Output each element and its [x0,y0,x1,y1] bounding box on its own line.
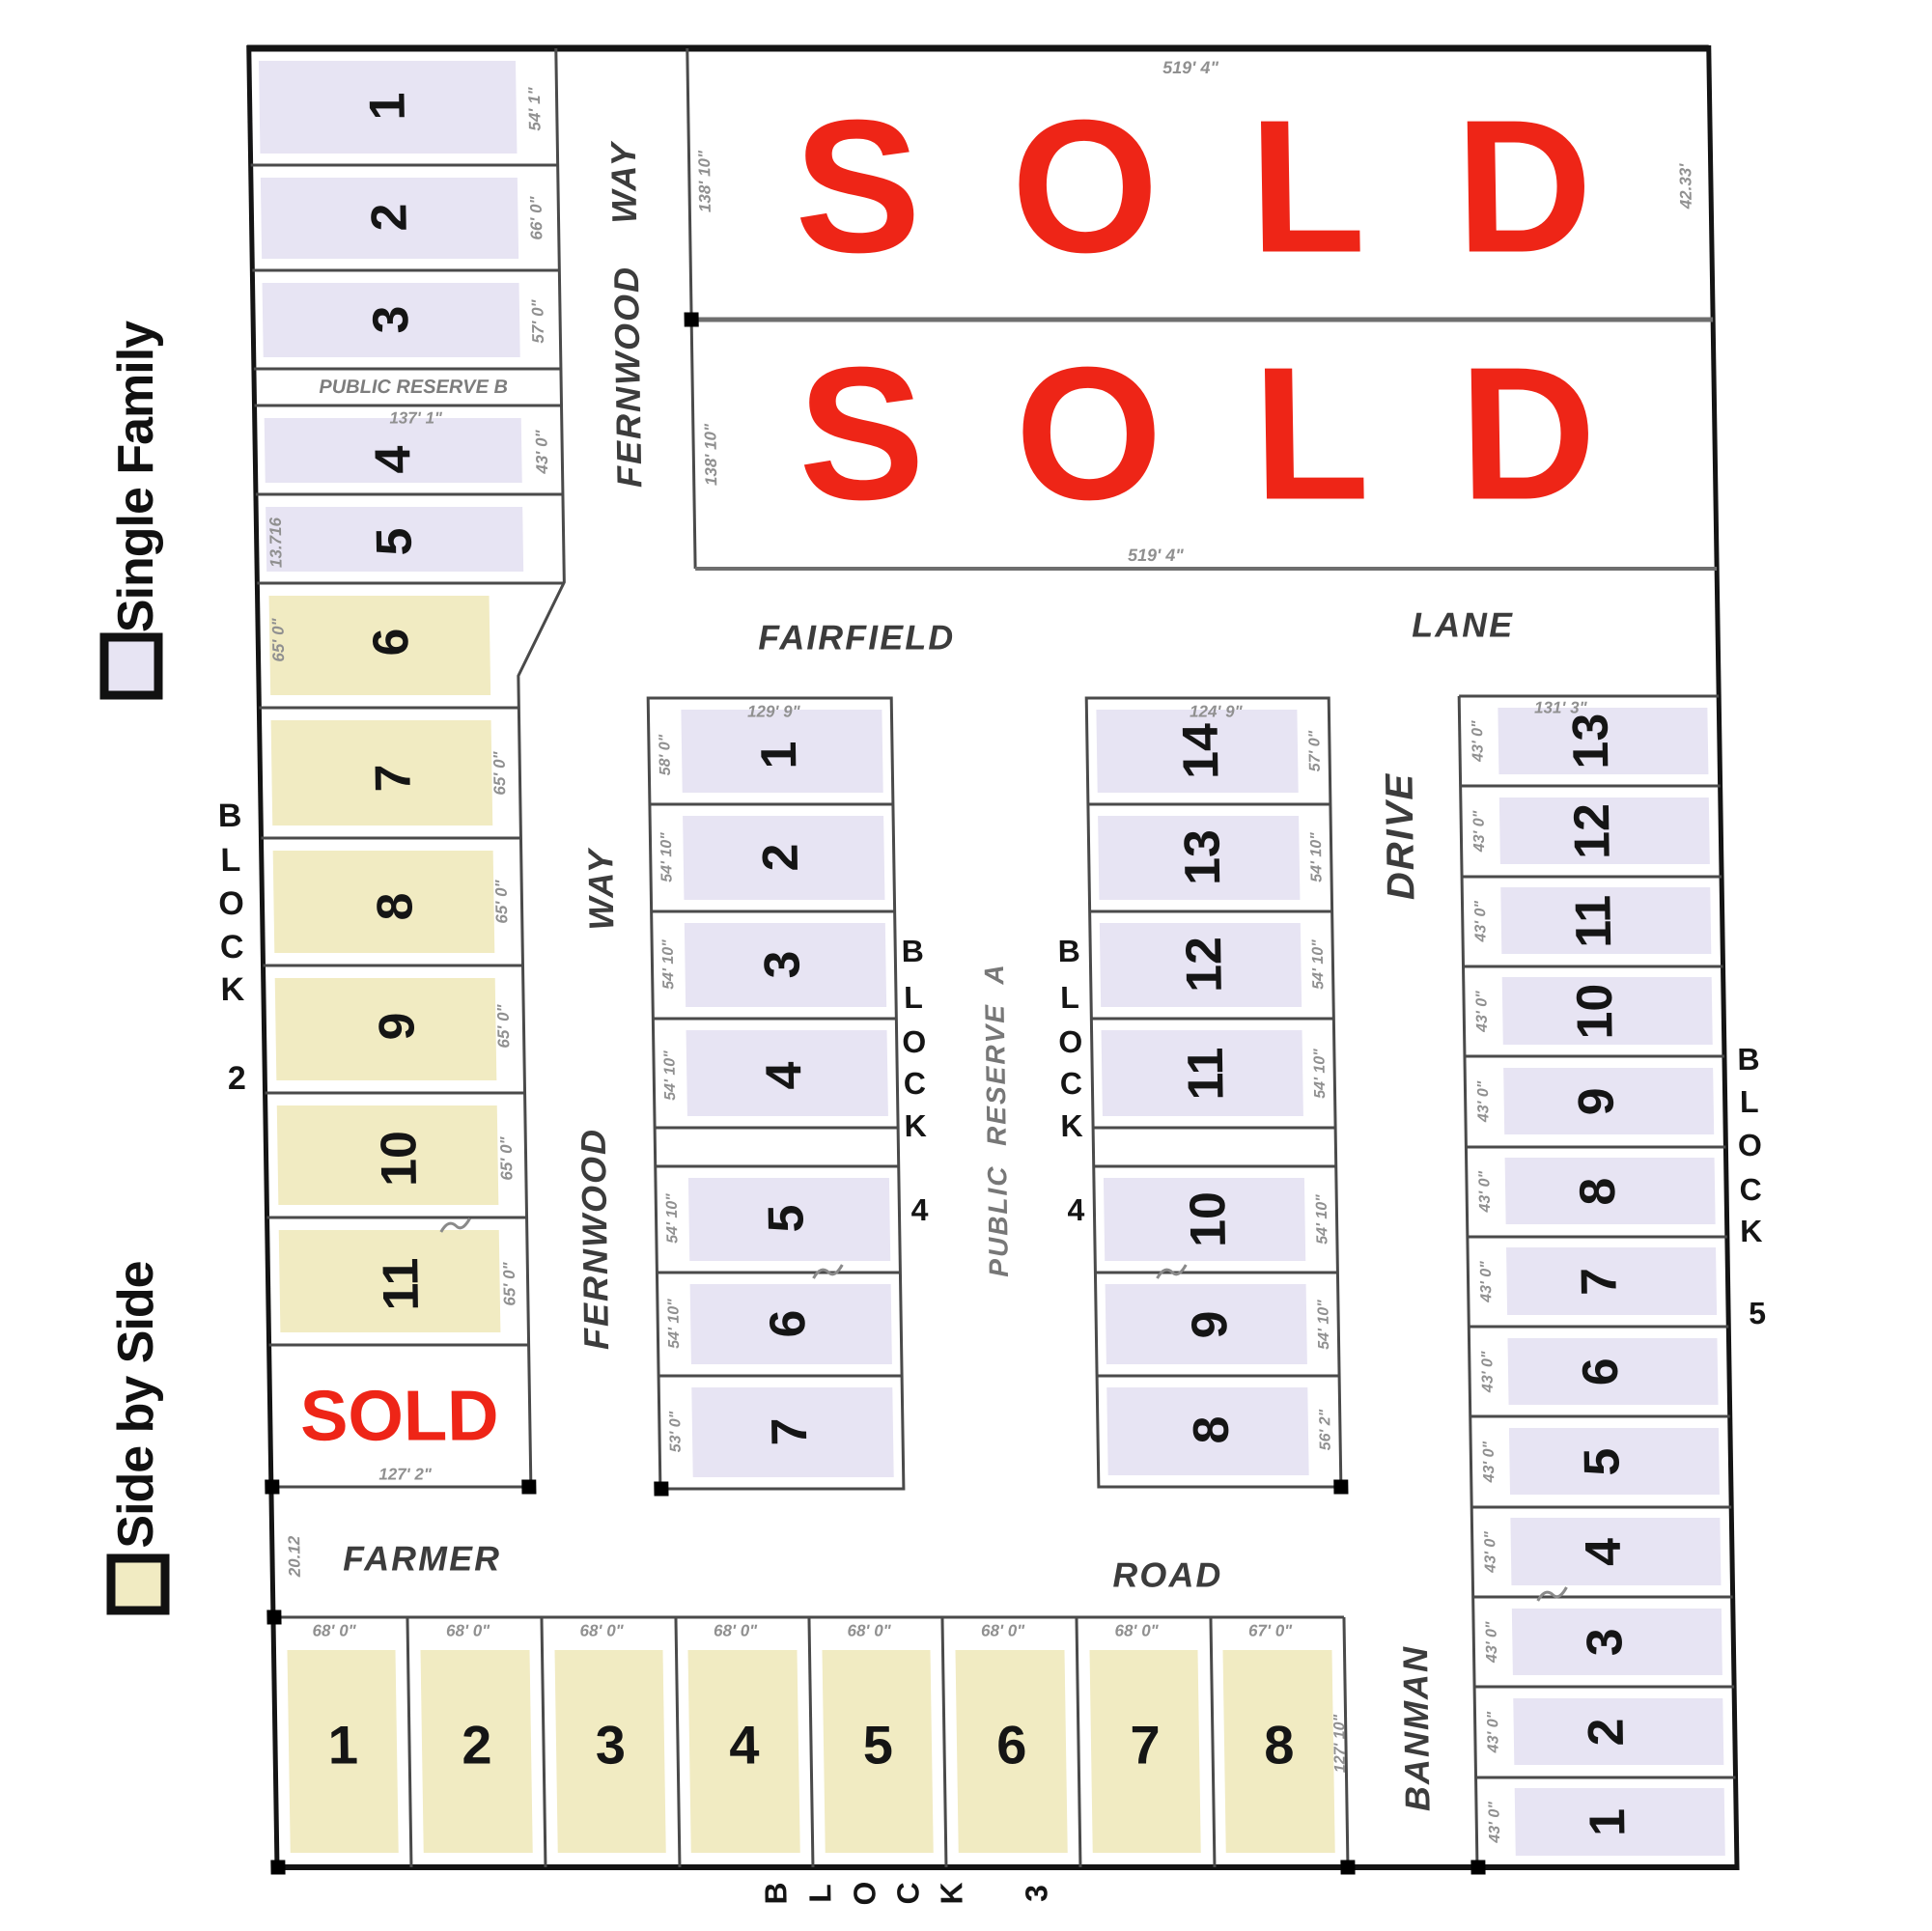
svg-text:FAIRFIELD: FAIRFIELD [758,618,956,658]
svg-text:L: L [802,1884,837,1903]
svg-text:PUBLIC RESERVE A: PUBLIC RESERVE A [979,963,1014,1276]
svg-text:42.33': 42.33' [1676,163,1695,210]
svg-text:C: C [890,1882,925,1904]
svg-text:20.12: 20.12 [285,1535,304,1578]
svg-text:43' 0": 43' 0" [1485,1711,1502,1753]
svg-text:Single Family: Single Family [108,321,164,632]
svg-text:131' 3": 131' 3" [1534,699,1588,717]
svg-text:127' 2": 127' 2" [378,1466,433,1484]
svg-text:7: 7 [365,765,421,793]
svg-text:124' 9": 124' 9" [1190,703,1244,721]
svg-text:65' 0": 65' 0" [500,1261,519,1305]
svg-text:12: 12 [1176,937,1233,993]
svg-text:BANMAN: BANMAN [1395,1645,1438,1811]
svg-text:WAY: WAY [603,140,644,223]
svg-text:O: O [902,1024,926,1059]
svg-text:65' 0": 65' 0" [490,750,510,795]
svg-text:43' 0": 43' 0" [1478,1261,1496,1303]
svg-text:13: 13 [1174,829,1231,885]
svg-text:C: C [1739,1172,1762,1207]
svg-text:43' 0": 43' 0" [1475,1080,1493,1123]
svg-text:68' 0": 68' 0" [312,1622,356,1640]
svg-text:K: K [1740,1214,1763,1248]
svg-text:43' 0": 43' 0" [1476,1171,1494,1214]
svg-text:FERNWOOD: FERNWOOD [606,266,650,488]
svg-text:53' 0": 53' 0" [667,1411,685,1452]
svg-text:B: B [218,798,242,834]
svg-text:4: 4 [756,1061,812,1089]
svg-text:O: O [1058,1024,1082,1059]
svg-text:13.716: 13.716 [266,517,286,568]
svg-text:7: 7 [1130,1715,1161,1776]
svg-text:127' 10": 127' 10" [1331,1714,1349,1773]
svg-text:DRIVE: DRIVE [1378,772,1422,900]
svg-text:L: L [1060,980,1079,1015]
svg-text:9: 9 [1568,1087,1624,1115]
svg-text:B: B [1737,1042,1760,1077]
svg-text:10: 10 [1180,1191,1237,1247]
svg-text:54' 10": 54' 10" [661,1050,679,1101]
svg-text:43' 0": 43' 0" [1481,1441,1498,1483]
svg-text:43' 0": 43' 0" [1482,1531,1499,1574]
svg-text:54' 1": 54' 1" [525,86,545,130]
svg-text:2: 2 [228,1060,247,1097]
svg-text:7: 7 [762,1418,818,1446]
svg-text:5: 5 [1574,1448,1630,1476]
svg-text:43' 0": 43' 0" [1484,1621,1501,1664]
svg-text:5: 5 [758,1205,814,1233]
svg-text:54' 10": 54' 10" [1315,1300,1332,1350]
svg-text:54' 10": 54' 10" [658,832,676,882]
svg-text:L: L [904,980,923,1015]
svg-text:68' 0": 68' 0" [847,1622,891,1640]
svg-text:13: 13 [1562,714,1619,770]
svg-text:11: 11 [1565,895,1622,948]
svg-text:PUBLIC RESERVE B: PUBLIC RESERVE B [319,377,508,398]
svg-text:SOLD: SOLD [299,1376,499,1456]
svg-text:43' 0": 43' 0" [1470,720,1487,763]
svg-text:10: 10 [371,1131,428,1187]
svg-text:11: 11 [373,1258,430,1311]
svg-text:K: K [934,1882,968,1904]
svg-text:138' 10": 138' 10" [701,423,720,486]
svg-text:68' 0": 68' 0" [1114,1622,1159,1640]
svg-text:9: 9 [369,1013,425,1041]
svg-text:9: 9 [1182,1311,1238,1339]
svg-text:54' 10": 54' 10" [1311,1049,1329,1099]
svg-text:43' 0": 43' 0" [1471,810,1489,853]
svg-text:4: 4 [365,445,421,473]
svg-text:5: 5 [1749,1296,1766,1330]
svg-text:1: 1 [1580,1808,1636,1836]
svg-text:65' 0": 65' 0" [494,1003,514,1048]
svg-text:3: 3 [1019,1885,1053,1902]
svg-text:519' 4": 519' 4" [1128,546,1185,565]
svg-text:B: B [758,1882,793,1904]
svg-text:43' 0": 43' 0" [1473,991,1491,1033]
svg-text:2: 2 [753,844,809,872]
svg-text:5: 5 [862,1715,893,1776]
svg-text:K: K [220,971,245,1008]
svg-text:137' 1": 137' 1" [389,409,443,428]
svg-text:43' 0": 43' 0" [1486,1802,1503,1844]
svg-text:56' 2": 56' 2" [1317,1409,1334,1450]
svg-text:11: 11 [1178,1048,1235,1101]
svg-text:65' 0": 65' 0" [492,879,512,923]
svg-text:5: 5 [366,528,422,556]
svg-text:Side by Side: Side by Side [108,1261,164,1548]
svg-text:129' 9": 129' 9" [747,703,801,721]
svg-text:138' 10": 138' 10" [695,150,714,212]
svg-text:43' 0": 43' 0" [1472,901,1490,943]
svg-text:8: 8 [1264,1715,1295,1776]
svg-text:2: 2 [462,1715,492,1776]
svg-text:O: O [218,885,244,922]
svg-text:3: 3 [1577,1628,1633,1656]
svg-text:54' 10": 54' 10" [1308,832,1326,882]
svg-text:68' 0": 68' 0" [579,1622,624,1640]
svg-text:C: C [1060,1066,1083,1101]
svg-text:2: 2 [361,204,417,232]
svg-text:1: 1 [327,1715,358,1776]
svg-text:4: 4 [729,1715,760,1776]
svg-text:68' 0": 68' 0" [981,1622,1025,1640]
svg-text:B: B [901,934,924,968]
svg-text:57' 0": 57' 0" [528,298,547,343]
svg-text:C: C [220,929,244,965]
svg-text:1: 1 [751,742,807,770]
svg-text:WAY: WAY [580,847,621,930]
svg-text:3: 3 [595,1715,626,1776]
svg-text:58' 0": 58' 0" [657,734,674,775]
svg-text:66' 0": 66' 0" [527,195,546,239]
svg-text:4: 4 [910,1192,929,1227]
svg-text:O: O [1738,1128,1762,1162]
svg-text:4: 4 [1067,1192,1085,1227]
svg-text:12: 12 [1564,803,1621,859]
svg-text:8: 8 [1184,1416,1240,1444]
svg-text:6: 6 [363,629,419,657]
svg-text:L: L [1740,1084,1759,1119]
svg-text:54' 10": 54' 10" [1310,939,1328,990]
svg-text:43' 0": 43' 0" [1479,1351,1497,1393]
svg-text:LANE: LANE [1412,605,1515,645]
svg-text:3: 3 [363,306,419,334]
svg-text:67' 0": 67' 0" [1248,1622,1293,1640]
svg-text:FARMER: FARMER [343,1539,502,1579]
svg-text:54' 10": 54' 10" [660,939,678,990]
svg-text:54' 10": 54' 10" [664,1193,682,1244]
svg-text:57' 0": 57' 0" [1306,730,1324,771]
svg-text:65' 0": 65' 0" [268,617,288,661]
svg-text:K: K [904,1108,927,1143]
svg-text:6: 6 [760,1310,816,1338]
svg-text:519' 4": 519' 4" [1162,58,1219,77]
svg-text:8: 8 [1570,1178,1626,1206]
svg-text:1: 1 [359,93,415,121]
svg-text:54' 10": 54' 10" [1314,1194,1331,1245]
svg-text:2: 2 [1579,1719,1635,1747]
svg-text:O: O [847,1882,882,1906]
svg-text:SOLD: SOLD [797,328,1689,540]
svg-text:SOLD: SOLD [793,81,1685,293]
svg-text:3: 3 [754,951,810,979]
svg-text:K: K [1060,1108,1083,1143]
svg-text:B: B [1057,934,1080,968]
svg-text:ROAD: ROAD [1112,1555,1223,1595]
svg-text:L: L [220,842,240,879]
svg-text:43' 0": 43' 0" [532,429,551,474]
svg-text:6: 6 [996,1715,1027,1776]
svg-text:68' 0": 68' 0" [714,1622,758,1640]
svg-text:68' 0": 68' 0" [446,1622,490,1640]
svg-text:65' 0": 65' 0" [497,1135,517,1180]
svg-text:6: 6 [1573,1357,1629,1385]
svg-text:C: C [904,1066,927,1101]
svg-text:54' 10": 54' 10" [665,1299,683,1349]
svg-text:4: 4 [1576,1538,1632,1566]
svg-text:FERNWOOD: FERNWOOD [574,1128,617,1350]
svg-text:8: 8 [367,893,423,921]
svg-text:10: 10 [1567,984,1624,1040]
svg-text:7: 7 [1571,1268,1627,1296]
svg-text:14: 14 [1173,723,1230,779]
